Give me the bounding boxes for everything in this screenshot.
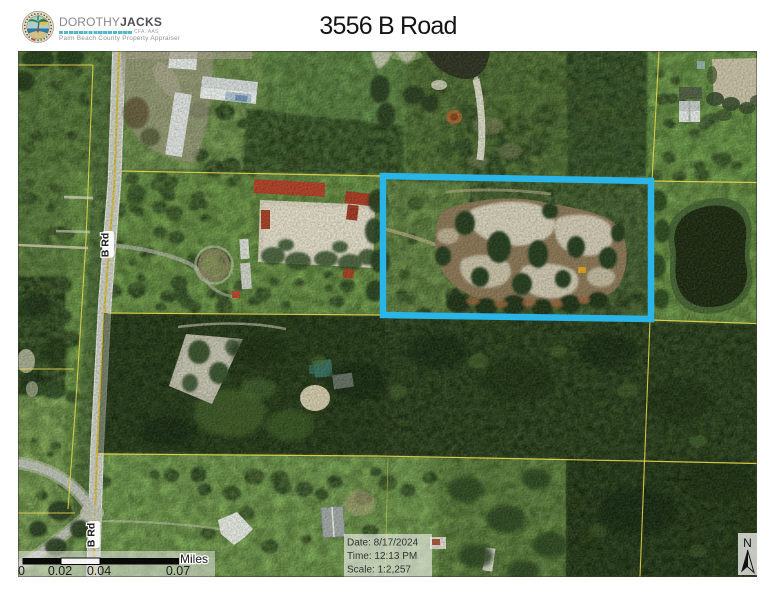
- svg-text:Time: 12:13 PM: Time: 12:13 PM: [347, 551, 417, 562]
- svg-text:B Rd: B Rd: [99, 233, 111, 258]
- svg-text:Date: 8/17/2024: Date: 8/17/2024: [347, 538, 419, 549]
- svg-text:Scale: 1:2,257: Scale: 1:2,257: [347, 565, 411, 576]
- svg-text:0.07: 0.07: [166, 564, 190, 577]
- svg-text:B Rd: B Rd: [85, 523, 97, 548]
- svg-text:N: N: [743, 536, 752, 550]
- svg-text:0.04: 0.04: [87, 564, 111, 577]
- svg-text:0: 0: [18, 564, 25, 577]
- svg-text:0.02: 0.02: [48, 564, 72, 577]
